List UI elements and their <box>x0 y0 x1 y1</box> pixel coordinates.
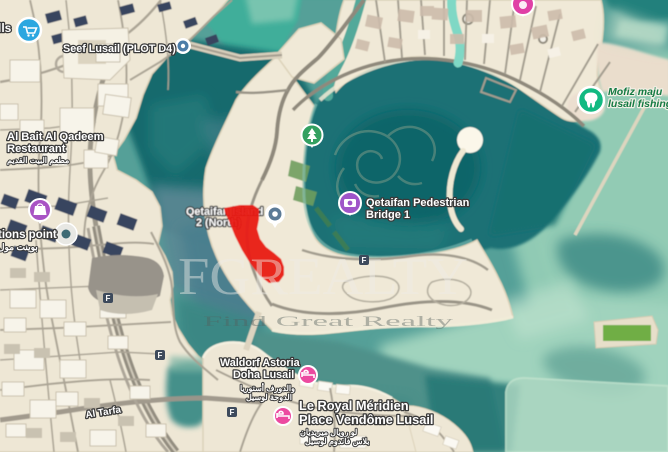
svg-text:FGREALTY: FGREALTY <box>178 248 468 306</box>
svg-text:Mofiz maju: Mofiz maju <box>608 86 663 98</box>
svg-text:Place Vendôme Lusail: Place Vendôme Lusail <box>299 412 433 427</box>
svg-text:Al Bait Al Qadeem: Al Bait Al Qadeem <box>7 131 104 143</box>
svg-text:F: F <box>230 408 235 417</box>
svg-text:Waldorf Astoria: Waldorf Astoria <box>220 357 301 369</box>
svg-text:tions point: tions point <box>0 229 57 241</box>
svg-text:مطعم البيت القديم: مطعم البيت القديم <box>7 156 69 166</box>
svg-text:F: F <box>362 256 367 265</box>
svg-text:lusail fishing: lusail fishing <box>608 98 668 110</box>
svg-text:بلاس فاندوم لوسيل: بلاس فاندوم لوسيل <box>305 437 369 447</box>
svg-text:F: F <box>106 294 111 303</box>
svg-text:Bridge 1: Bridge 1 <box>366 209 410 221</box>
svg-text:lls: lls <box>0 21 12 35</box>
svg-text:F: F <box>158 351 163 360</box>
svg-text:Doha Lusail: Doha Lusail <box>233 369 294 381</box>
svg-text:Le Royal Méridien: Le Royal Méridien <box>299 398 409 413</box>
svg-text:الدوحة لوسيل: الدوحة لوسيل <box>246 393 292 403</box>
svg-text:Qetaifan Pedestrian: Qetaifan Pedestrian <box>366 197 470 209</box>
svg-text:Restaurant: Restaurant <box>7 143 66 155</box>
svg-text:بوينت مول: بوينت مول <box>0 242 38 253</box>
svg-text:Find Great Realty: Find Great Realty <box>203 314 454 330</box>
svg-text:Seef Lusail (PLOT D4): Seef Lusail (PLOT D4) <box>63 43 176 55</box>
